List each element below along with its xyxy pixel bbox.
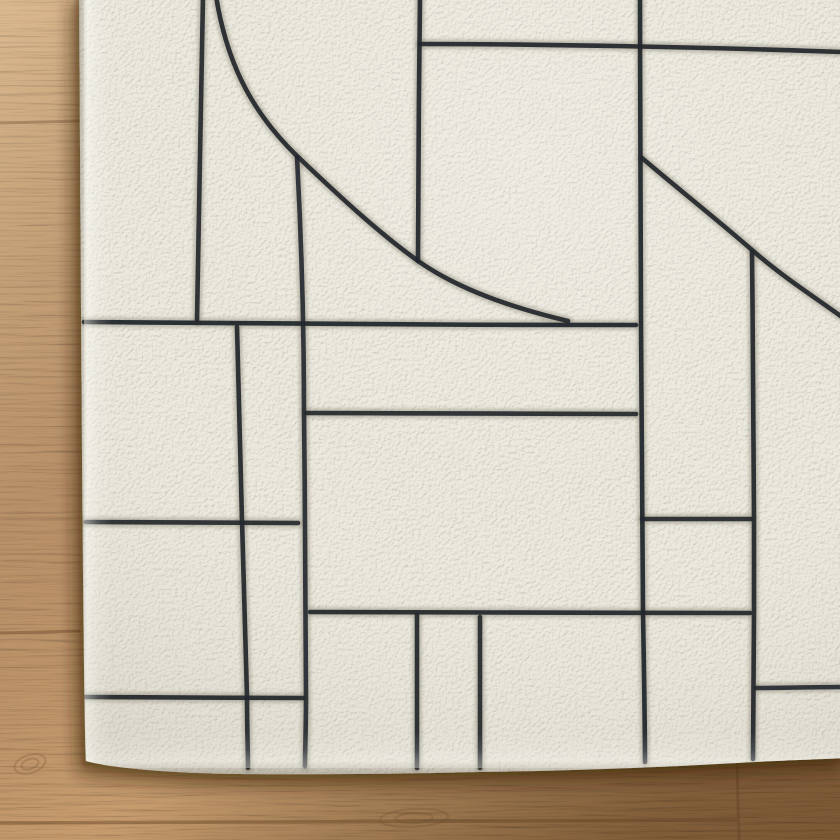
horizontal-line-6 xyxy=(310,612,750,613)
horizontal-line-7 xyxy=(756,687,840,688)
horizontal-line-5 xyxy=(84,697,303,698)
horizontal-line-2 xyxy=(306,413,636,414)
rug xyxy=(0,0,840,790)
vertical-line-c xyxy=(418,0,420,261)
rug-shadow-wrap xyxy=(0,0,840,790)
scene xyxy=(0,0,840,840)
horizontal-line-3 xyxy=(86,522,298,523)
vertical-line-e xyxy=(752,252,754,759)
scene-svg xyxy=(0,0,840,840)
rug-left-edge-highlight xyxy=(84,0,112,780)
